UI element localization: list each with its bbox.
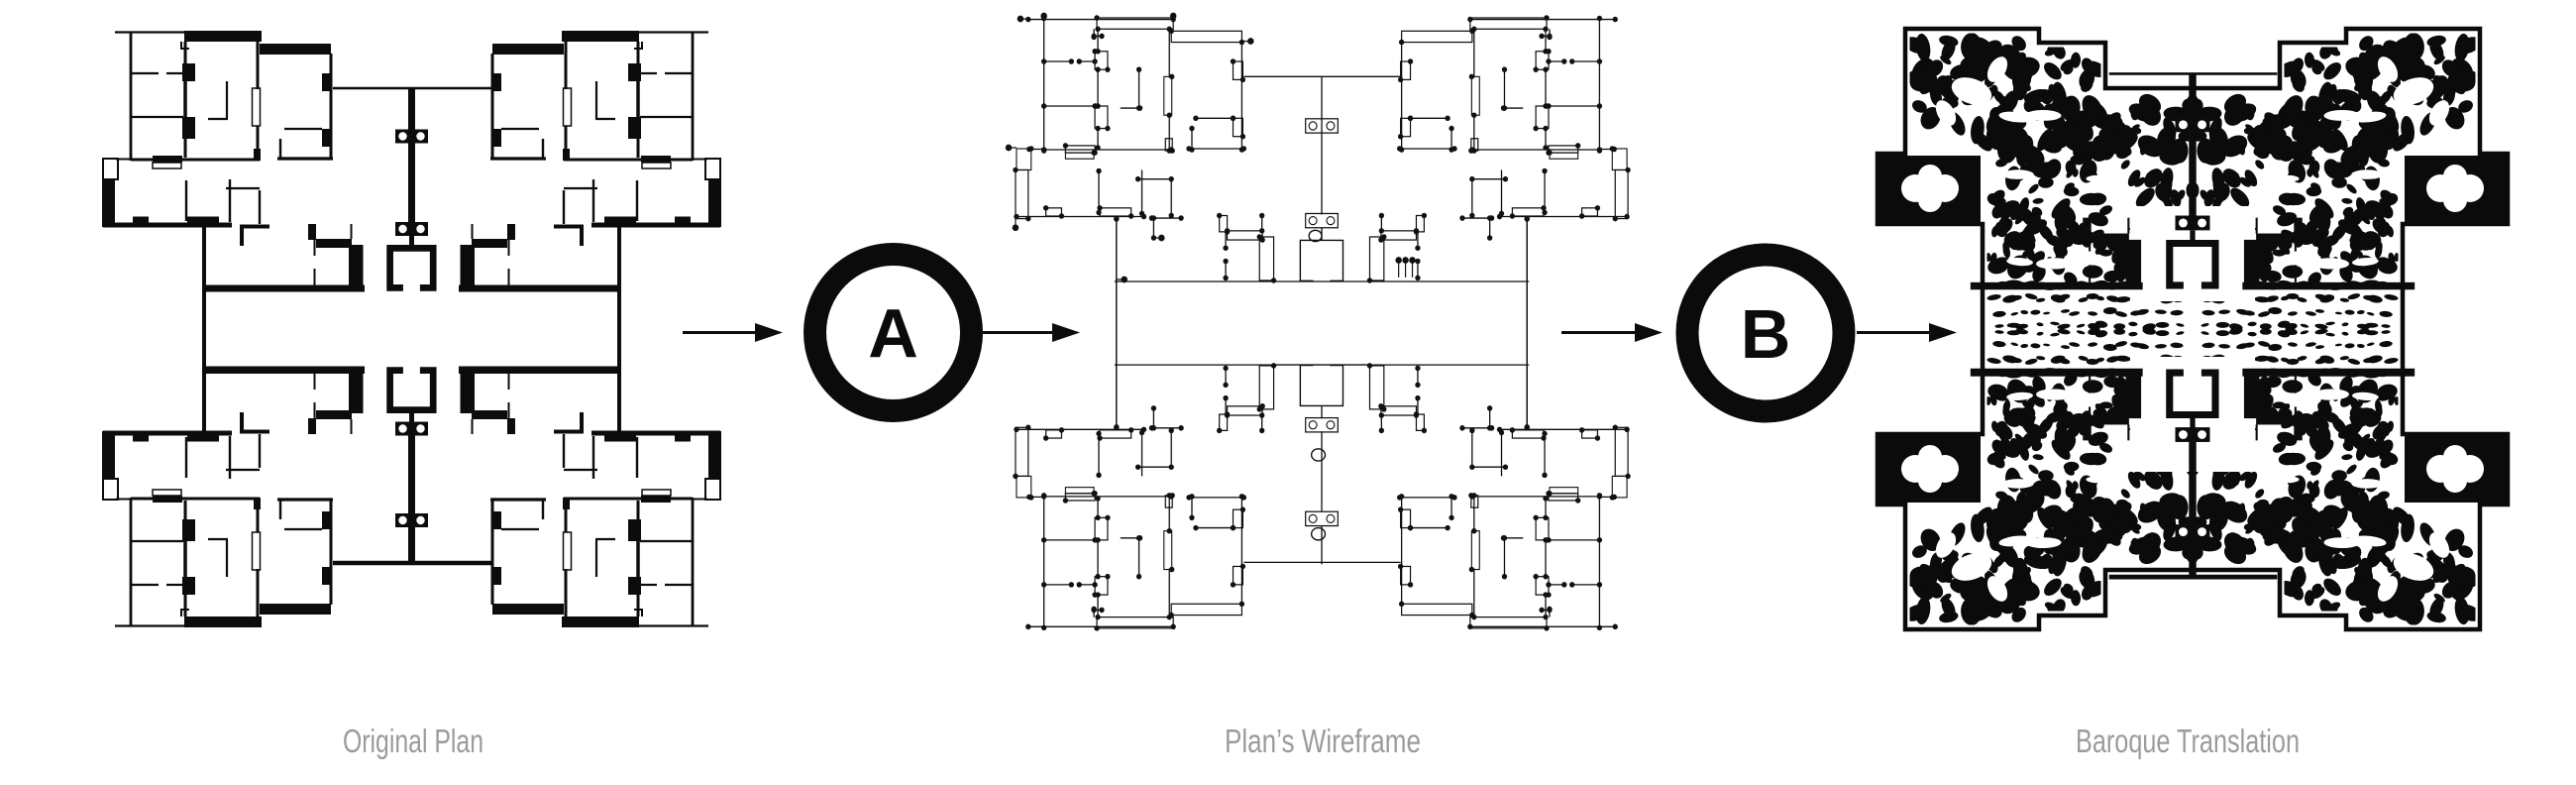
svg-text:Original Plan: Original Plan [343, 723, 483, 759]
svg-text:B: B [1741, 295, 1791, 373]
svg-text:A: A [868, 295, 918, 373]
svg-text:Plan’s Wireframe: Plan’s Wireframe [1225, 723, 1421, 759]
svg-text:Baroque Translation: Baroque Translation [2076, 723, 2300, 759]
